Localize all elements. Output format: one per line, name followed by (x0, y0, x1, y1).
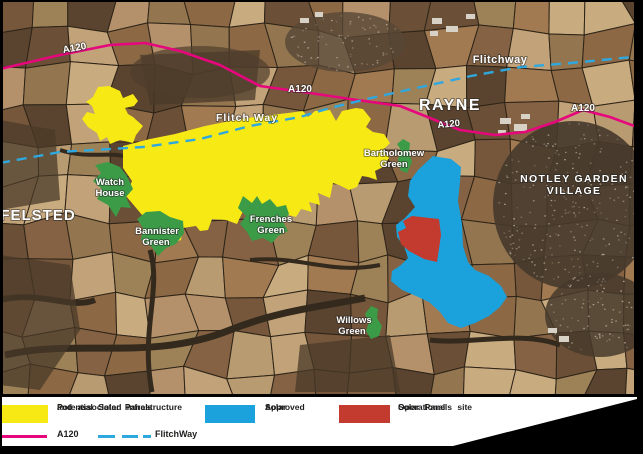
label-willows-2: Green (338, 326, 366, 337)
label-frenches-1: Frenches (250, 214, 292, 225)
legend-swatch-operational (339, 405, 390, 423)
map-area: A120 A120 A120 A120 Flitch Way Flitchway… (3, 2, 634, 394)
label-a120-2: A120 (288, 84, 312, 95)
solar-map-figure: A120 A120 A120 A120 Flitch Way Flitchway… (0, 0, 643, 454)
label-bannister-2: Green (142, 237, 170, 248)
label-watch-house-1: Watch (96, 177, 124, 188)
legend-label-approved-line2: Solar (265, 403, 286, 413)
legend-dash-flitchway-2 (122, 435, 138, 438)
legend-black-wedge (453, 397, 637, 446)
label-notley-line2: VILLAGE (547, 185, 602, 197)
legend: Potential Solar Panels and associated in… (2, 397, 637, 446)
label-rayne: RAYNE (419, 97, 481, 114)
legend-label-potential-line2: and associated infrastructure (57, 403, 182, 413)
legend-dash-flitchway-3 (143, 435, 151, 438)
label-flitchway: Flitchway (473, 54, 528, 66)
legend-swatch-approved (205, 405, 255, 423)
label-notley-line1: NOTLEY GARDEN (520, 173, 628, 185)
label-bartholomew-2: Green (380, 159, 408, 170)
legend-dash-flitchway-1 (98, 435, 115, 438)
legend-label-a120: A120 (57, 429, 79, 439)
label-bannister-1: Bannister (135, 226, 179, 237)
label-willows-1: Willows (336, 315, 371, 326)
label-bartholomew-1: Bartholomew (364, 148, 425, 159)
legend-swatch-potential (2, 405, 48, 423)
legend-label-operational-line2: Solar Panels site (398, 403, 472, 413)
label-flitch-way: Flitch Way (216, 112, 278, 124)
legend-label-flitchway: FlitchWay (155, 429, 197, 439)
legend-line-a120 (2, 435, 47, 438)
label-felsted: FELSTED (3, 207, 76, 224)
label-frenches-2: Green (257, 225, 285, 236)
label-watch-house-2: House (95, 188, 124, 199)
label-a120-4: A120 (571, 103, 595, 114)
aerial-map: A120 A120 A120 A120 Flitch Way Flitchway… (3, 2, 634, 394)
